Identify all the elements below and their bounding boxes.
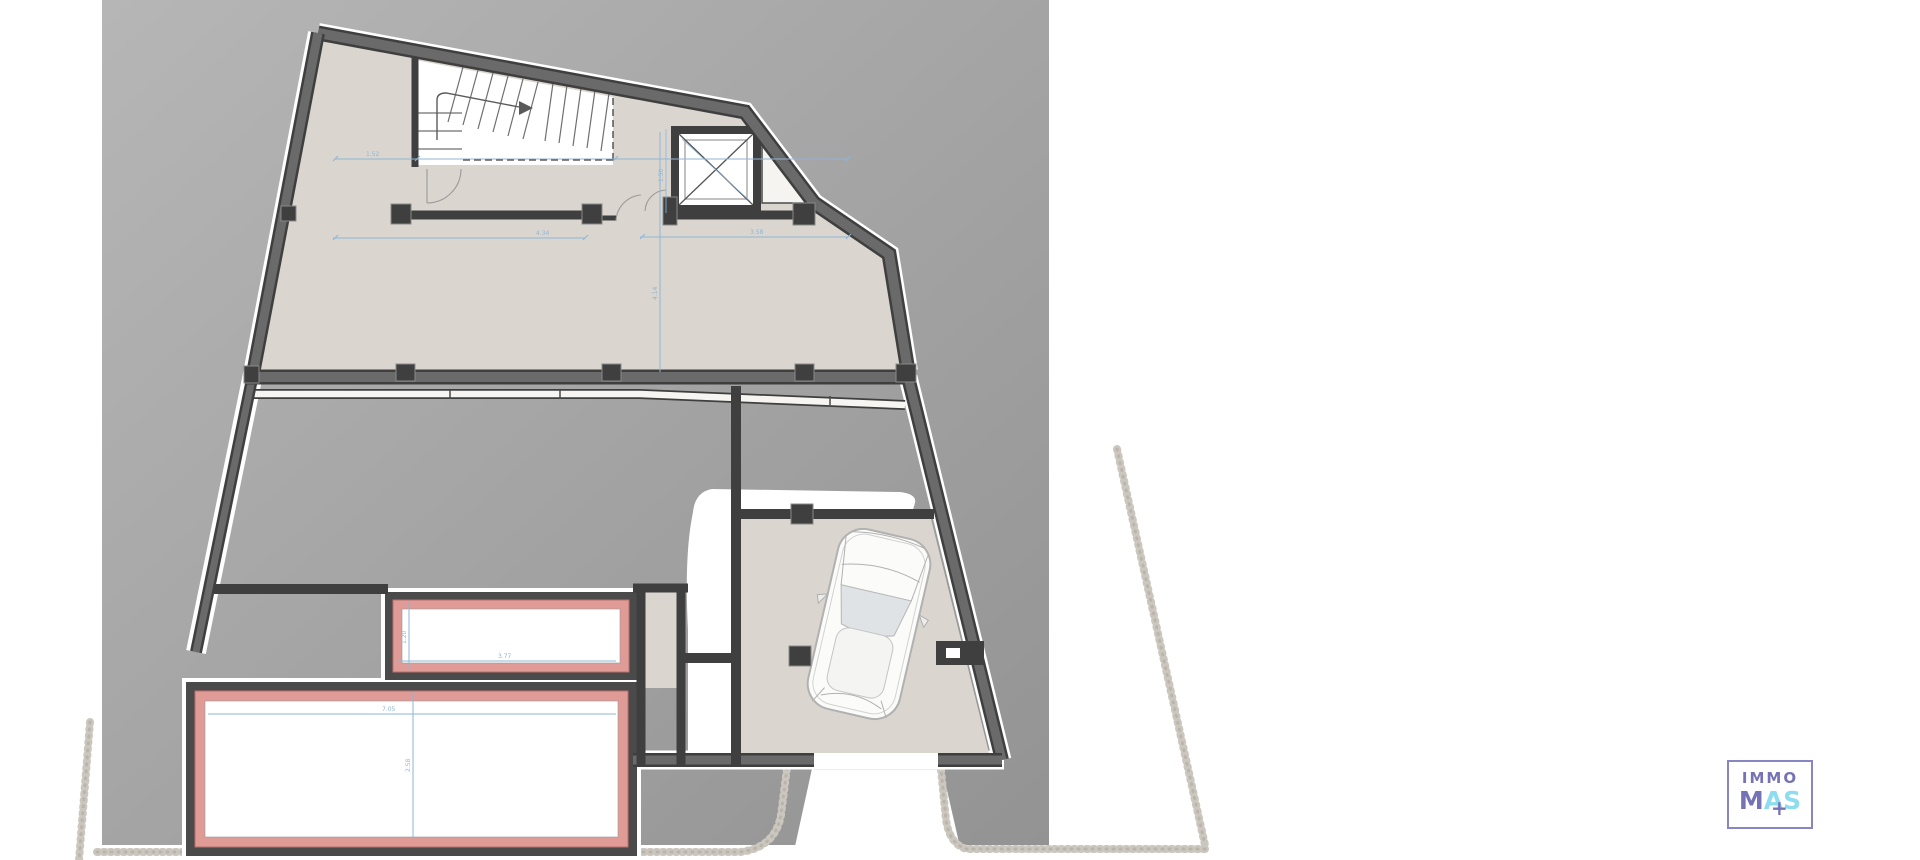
floor-plan-canvas: 1.52 4.34 3.58 4.14 1.50 3.77 1.20 7.05 … bbox=[0, 0, 1920, 860]
logo-line2: MAS bbox=[1729, 788, 1811, 813]
corridor bbox=[645, 592, 677, 688]
dim-label: 3.58 bbox=[750, 229, 764, 236]
elevator-shaft bbox=[671, 126, 761, 213]
logo-plus-icon: + bbox=[1771, 798, 1788, 818]
pool-small bbox=[385, 592, 637, 680]
immo-mas-logo: IMMO MAS + bbox=[1727, 760, 1813, 829]
wall-jog-notch bbox=[946, 648, 960, 658]
dim-label: 7.05 bbox=[382, 706, 396, 713]
dim-label: 3.77 bbox=[498, 653, 512, 660]
dim-label: 2.58 bbox=[405, 758, 412, 772]
driveway bbox=[792, 764, 963, 860]
logo-letter-m: M bbox=[1739, 786, 1764, 815]
dim-label: 1.20 bbox=[401, 630, 408, 644]
dim-label: 4.34 bbox=[536, 230, 550, 237]
dim-label: 1.52 bbox=[366, 151, 380, 158]
dim-label: 1.50 bbox=[658, 168, 665, 182]
logo-line1: IMMO bbox=[1729, 771, 1811, 786]
dim-label: 4.14 bbox=[652, 286, 659, 300]
